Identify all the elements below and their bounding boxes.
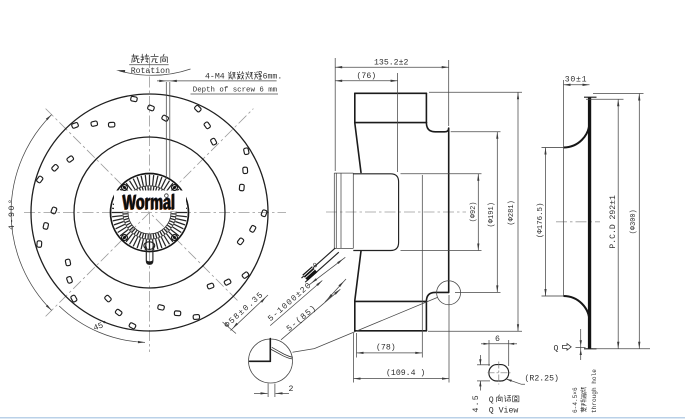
- svg-text:(Φ281): (Φ281): [508, 200, 516, 226]
- svg-text:6mm.: 6mm.: [263, 73, 283, 82]
- svg-text:4-90°: 4-90°: [8, 197, 17, 230]
- svg-text:Q: Q: [489, 396, 494, 405]
- svg-text:Q: Q: [554, 345, 559, 354]
- svg-text:135.2±2: 135.2±2: [374, 59, 408, 68]
- svg-text:Q View: Q View: [489, 405, 519, 415]
- svg-text:Depth of screw 6 mm: Depth of screw 6 mm: [193, 87, 278, 95]
- svg-text:P.C.D 292±1: P.C.D 292±1: [609, 195, 618, 249]
- svg-text:(R2.25): (R2.25): [525, 374, 559, 384]
- svg-text:(109.4 ): (109.4 ): [386, 368, 425, 378]
- svg-text:(Φ191): (Φ191): [488, 202, 496, 228]
- svg-text:30±1: 30±1: [565, 76, 587, 85]
- svg-text:(76): (76): [357, 71, 377, 81]
- svg-text:Wormal: Wormal: [122, 192, 174, 215]
- svg-text:(Φ300): (Φ300): [630, 209, 638, 234]
- svg-text:6-4.5×6: 6-4.5×6: [572, 387, 579, 413]
- svg-text:(78): (78): [376, 342, 396, 352]
- svg-text:6: 6: [495, 335, 500, 344]
- svg-text:(Φ176.5): (Φ176.5): [537, 203, 545, 238]
- svg-text:(Φ92): (Φ92): [470, 202, 478, 223]
- svg-text:4-M4: 4-M4: [205, 73, 225, 82]
- svg-text:2: 2: [289, 385, 294, 394]
- svg-text:through hole: through hole: [591, 369, 598, 413]
- svg-text:4.5: 4.5: [472, 394, 481, 412]
